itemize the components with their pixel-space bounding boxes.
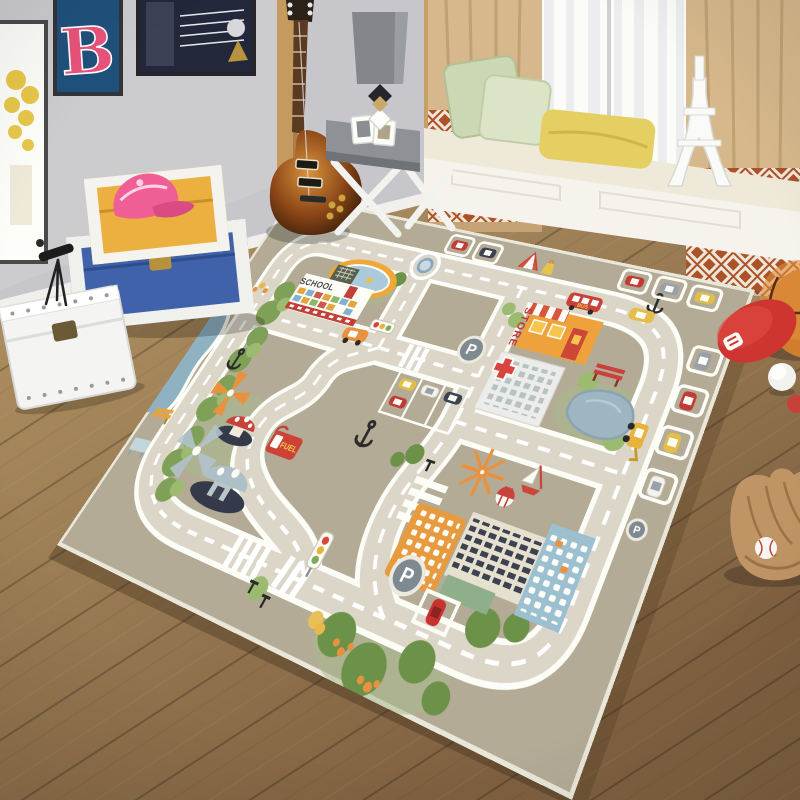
letter-b-art: B <box>58 12 117 91</box>
frame-letter-b: B <box>55 0 121 94</box>
frame-city-art <box>138 0 254 74</box>
frame-yellow-art <box>0 22 46 262</box>
kids-room-scene: B <box>0 0 800 800</box>
